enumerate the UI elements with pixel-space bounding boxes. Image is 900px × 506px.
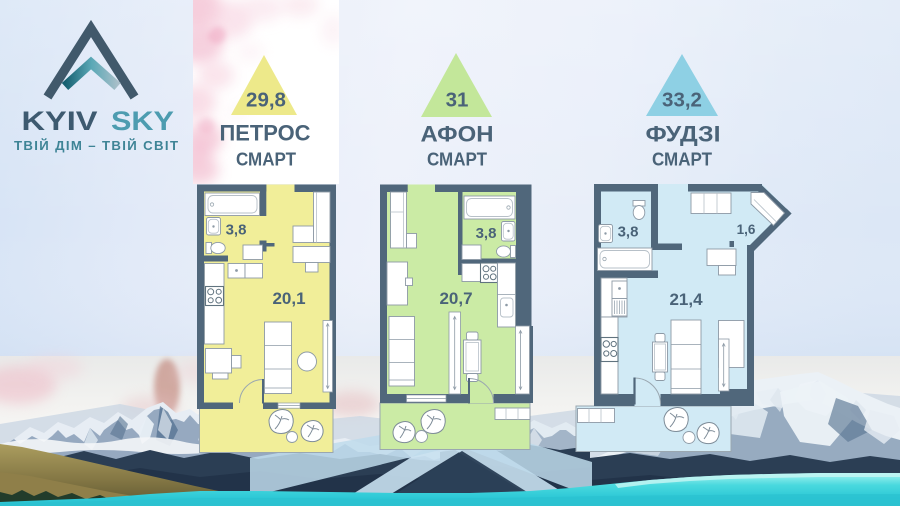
svg-text:ТВІЙ ДІМ – ТВІЙ СВІТ: ТВІЙ ДІМ – ТВІЙ СВІТ	[14, 138, 178, 153]
svg-text:ФУДЗІ: ФУДЗІ	[646, 122, 721, 147]
svg-text:СМАРТ: СМАРТ	[236, 149, 297, 170]
svg-text:3,8: 3,8	[476, 225, 497, 242]
svg-text:СМАРТ: СМАРТ	[652, 149, 713, 170]
svg-text:СМАРТ: СМАРТ	[427, 149, 488, 170]
svg-text:KYIV: KYIV	[22, 106, 98, 136]
svg-text:1,6: 1,6	[737, 222, 756, 237]
svg-text:31: 31	[446, 89, 469, 112]
svg-text:20,7: 20,7	[439, 289, 472, 308]
svg-text:20,1: 20,1	[272, 289, 305, 308]
svg-text:3,8: 3,8	[226, 222, 247, 239]
svg-text:АФОН: АФОН	[421, 122, 494, 147]
svg-text:SKY: SKY	[111, 106, 174, 136]
svg-text:21,4: 21,4	[669, 290, 703, 309]
svg-text:ПЕТРОС: ПЕТРОС	[220, 121, 311, 146]
svg-text:3,8: 3,8	[618, 224, 639, 241]
svg-text:29,8: 29,8	[246, 89, 286, 112]
svg-text:33,2: 33,2	[662, 89, 702, 112]
